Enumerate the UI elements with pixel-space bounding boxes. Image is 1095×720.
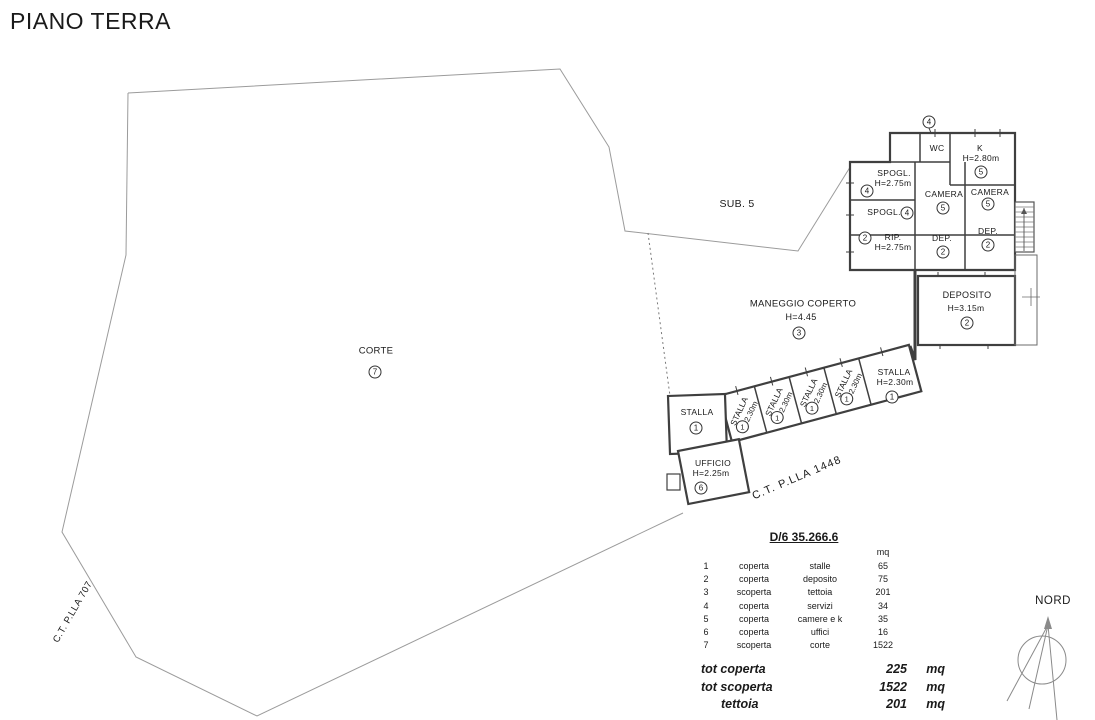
room-spogl-top-height: H=2.75m bbox=[875, 178, 912, 188]
tettoia-boundary-dashed bbox=[648, 233, 670, 396]
terrace bbox=[1015, 255, 1037, 345]
total-label: tot scoperta bbox=[693, 679, 835, 697]
row-use: deposito bbox=[789, 573, 851, 586]
room-maneggio-height: H=4.45 bbox=[785, 312, 816, 322]
row-use: stalle bbox=[789, 560, 851, 573]
room-spogl-bottom-label: SPOGL. bbox=[867, 207, 900, 217]
room-k-label: K bbox=[977, 143, 983, 153]
row-use: camere e k bbox=[789, 613, 851, 626]
row-coverage: coperta bbox=[719, 600, 789, 613]
room-dep-left-label: DEP. bbox=[932, 233, 952, 243]
table-row: 5 coperta camere e k 35 bbox=[693, 613, 945, 626]
table-row: 6 coperta uffici 16 bbox=[693, 626, 945, 639]
total-value: 225 bbox=[835, 661, 907, 679]
stall-number: 1 bbox=[740, 423, 744, 432]
connecting-wall bbox=[910, 270, 915, 360]
total-label: tettoia bbox=[693, 696, 835, 714]
room-deposito-height: H=3.15m bbox=[948, 303, 985, 313]
row-area: 1522 bbox=[851, 639, 915, 652]
room-stalla-end-height: H=2.30m bbox=[877, 377, 914, 387]
row-use: servizi bbox=[789, 600, 851, 613]
row-num: 4 bbox=[693, 600, 719, 613]
room-dep-right-number: 2 bbox=[982, 239, 995, 252]
row-coverage: coperta bbox=[719, 613, 789, 626]
room-camera-right-number: 5 bbox=[982, 198, 995, 211]
room-deposito-label: DEPOSITO bbox=[943, 290, 992, 300]
room-stalla-square-label: STALLA bbox=[681, 407, 714, 417]
row-coverage: scoperta bbox=[719, 586, 789, 599]
room-spogl-bottom-number: 4 bbox=[901, 207, 914, 220]
row-area: 35 bbox=[851, 613, 915, 626]
row-num: 6 bbox=[693, 626, 719, 639]
room-spogl-top-label: SPOGL. bbox=[877, 168, 910, 178]
room-corte-label: CORTE bbox=[359, 346, 394, 357]
row-area: 201 bbox=[851, 586, 915, 599]
table-row: 2 coperta deposito 75 bbox=[693, 573, 945, 586]
parcel-boundary-north bbox=[128, 69, 852, 251]
room-corte-number: 7 bbox=[369, 366, 382, 379]
room-dep-left-number: 2 bbox=[937, 246, 950, 259]
total-value: 1522 bbox=[835, 679, 907, 697]
total-row: tot coperta 225 mq bbox=[693, 661, 945, 679]
stall-number: 1 bbox=[775, 413, 779, 422]
row-num: 3 bbox=[693, 586, 719, 599]
north-label: NORD bbox=[1035, 595, 1071, 607]
table-row: 7 scoperta corte 1522 bbox=[693, 639, 945, 652]
row-num: 7 bbox=[693, 639, 719, 652]
row-coverage: coperta bbox=[719, 560, 789, 573]
row-area: 65 bbox=[851, 560, 915, 573]
row-coverage: coperta bbox=[719, 626, 789, 639]
row-num: 2 bbox=[693, 573, 719, 586]
room-camera-right-label: CAMERA bbox=[971, 187, 1009, 197]
north-compass-icon bbox=[1007, 616, 1066, 720]
total-label: tot coperta bbox=[693, 661, 835, 679]
row-use: corte bbox=[789, 639, 851, 652]
room-rip-number: 2 bbox=[859, 232, 872, 245]
table-row: 4 coperta servizi 34 bbox=[693, 600, 945, 613]
room-stalla-end-number: 1 bbox=[886, 391, 899, 404]
room-dep-right-label: DEP. bbox=[978, 226, 998, 236]
table-row: 3 scoperta tettoia 201 bbox=[693, 586, 945, 599]
room-ufficio-height: H=2.25m bbox=[693, 468, 730, 478]
page-title: PIANO TERRA bbox=[10, 8, 171, 35]
room-maneggio-label: MANEGGIO COPERTO bbox=[750, 299, 856, 310]
room-deposito-number: 2 bbox=[961, 317, 974, 330]
room-stalla-square-number: 1 bbox=[690, 422, 703, 435]
table-row: 1 coperta stalle 65 bbox=[693, 560, 945, 573]
room-maneggio-number: 3 bbox=[793, 327, 806, 340]
ufficio-stub bbox=[667, 474, 680, 490]
room-wc-label: WC bbox=[930, 143, 945, 153]
room-k-number: 5 bbox=[975, 166, 988, 179]
staircase-icon bbox=[1015, 202, 1034, 252]
row-coverage: scoperta bbox=[719, 639, 789, 652]
stall-number: 1 bbox=[845, 395, 849, 404]
sub-label: SUB. 5 bbox=[719, 198, 754, 210]
room-k-height: H=2.80m bbox=[963, 153, 1000, 163]
room-rip-height: H=2.75m bbox=[875, 242, 912, 252]
area-table: D/6 35.266.6 mq 1 coperta stalle 65 2 co… bbox=[693, 530, 945, 714]
stall-number: 1 bbox=[810, 404, 814, 413]
entry-marker-number: 4 bbox=[923, 116, 936, 129]
table-totals: tot coperta 225 mq tot scoperta 1522 mq … bbox=[693, 661, 945, 714]
row-area: 16 bbox=[851, 626, 915, 639]
row-coverage: coperta bbox=[719, 573, 789, 586]
total-value: 201 bbox=[835, 696, 907, 714]
total-row: tot scoperta 1522 mq bbox=[693, 679, 945, 697]
area-table-title: D/6 35.266.6 bbox=[693, 530, 915, 544]
row-num: 5 bbox=[693, 613, 719, 626]
row-use: tettoia bbox=[789, 586, 851, 599]
room-ufficio-number: 6 bbox=[695, 482, 708, 495]
total-unit: mq bbox=[907, 661, 945, 679]
room-rip-label: RIP. bbox=[885, 232, 902, 242]
parcel-boundary-west-south bbox=[62, 93, 683, 716]
total-row: tettoia 201 mq bbox=[693, 696, 945, 714]
row-use: uffici bbox=[789, 626, 851, 639]
total-unit: mq bbox=[907, 696, 945, 714]
row-area: 75 bbox=[851, 573, 915, 586]
room-camera-left-number: 5 bbox=[937, 202, 950, 215]
floor-plan-page: STALLA H=2.30m 1 STALLA H=2.30m 1 STALLA… bbox=[0, 0, 1095, 720]
room-stalla-end-label: STALLA bbox=[878, 367, 911, 377]
row-num: 1 bbox=[693, 560, 719, 573]
area-table-unit-header: mq bbox=[851, 547, 915, 560]
room-camera-left-label: CAMERA bbox=[925, 189, 963, 199]
room-ufficio-label: UFFICIO bbox=[695, 458, 731, 468]
total-unit: mq bbox=[907, 679, 945, 697]
room-spogl-top-number: 4 bbox=[861, 185, 874, 198]
row-area: 34 bbox=[851, 600, 915, 613]
